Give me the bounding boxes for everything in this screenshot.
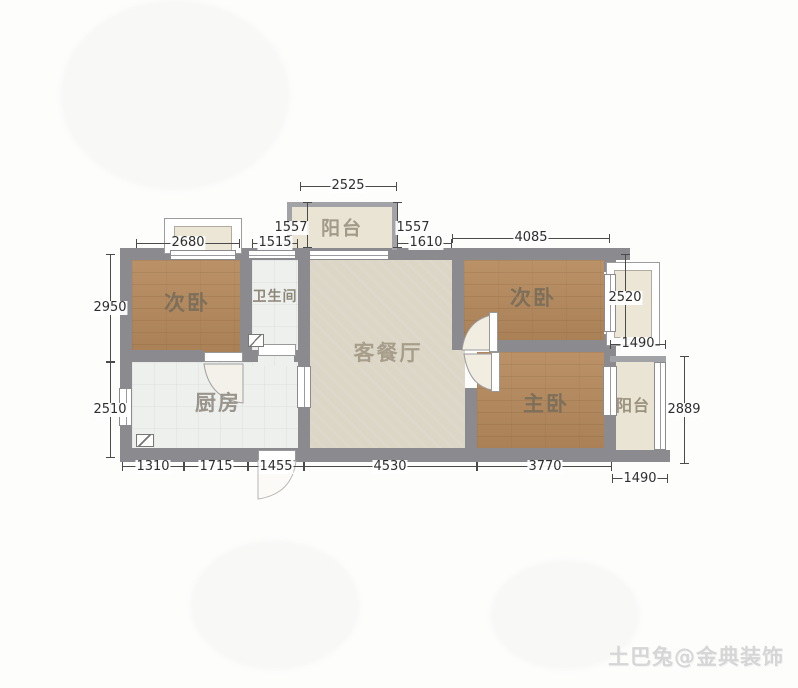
dim-label-2525: 2525 — [330, 179, 365, 193]
door-panel-bedroom-right — [489, 312, 498, 352]
dim-label-1610: 1610 — [408, 236, 443, 250]
dim-label-2520: 2520 — [607, 291, 642, 305]
room-label-master-bedroom: 主卧 — [523, 388, 569, 418]
dim-label-1490-top: 1490 — [620, 337, 655, 351]
door-arc-master-bedroom — [464, 354, 492, 390]
room-label-living-dining: 客餐厅 — [354, 337, 423, 367]
dim-label-1557-right: 1557 — [395, 221, 430, 235]
dim-label-2510: 2510 — [92, 403, 127, 417]
floor-drain-icon-bathroom — [248, 334, 264, 347]
dim-label-1310: 1310 — [135, 460, 170, 474]
floor-plan: 阳台 次卧 卫生间 客餐厅 次卧 厨房 主卧 阳台 2525 1557 1557… — [0, 0, 798, 688]
floor-drain-icon-kitchen — [136, 434, 154, 447]
dim-label-2950: 2950 — [92, 301, 127, 315]
dim-label-1490-bottom: 1490 — [622, 472, 657, 486]
watermark-text: 土巴兔@金典装饰 — [608, 641, 784, 671]
room-label-balcony-right: 阳台 — [616, 392, 650, 416]
dim-label-1557-left: 1557 — [273, 221, 308, 235]
dim-label-1455: 1455 — [258, 460, 293, 474]
room-label-balcony-top: 阳台 — [321, 214, 363, 241]
room-label-bathroom: 卫生间 — [253, 286, 298, 306]
dim-label-1715: 1715 — [198, 460, 233, 474]
dim-label-4530: 4530 — [372, 460, 407, 474]
dim-label-3770: 3770 — [527, 460, 562, 474]
door-panel-kitchen — [204, 352, 243, 362]
room-label-kitchen: 厨房 — [195, 387, 241, 417]
dim-label-2889: 2889 — [666, 403, 701, 417]
dim-label-1515: 1515 — [257, 236, 292, 250]
room-label-bedroom-right: 次卧 — [510, 282, 556, 312]
dim-label-2680: 2680 — [170, 236, 205, 250]
room-label-bedroom-left: 次卧 — [164, 287, 210, 317]
door-panel-master-bedroom — [491, 352, 500, 392]
dim-label-4085: 4085 — [513, 231, 548, 245]
